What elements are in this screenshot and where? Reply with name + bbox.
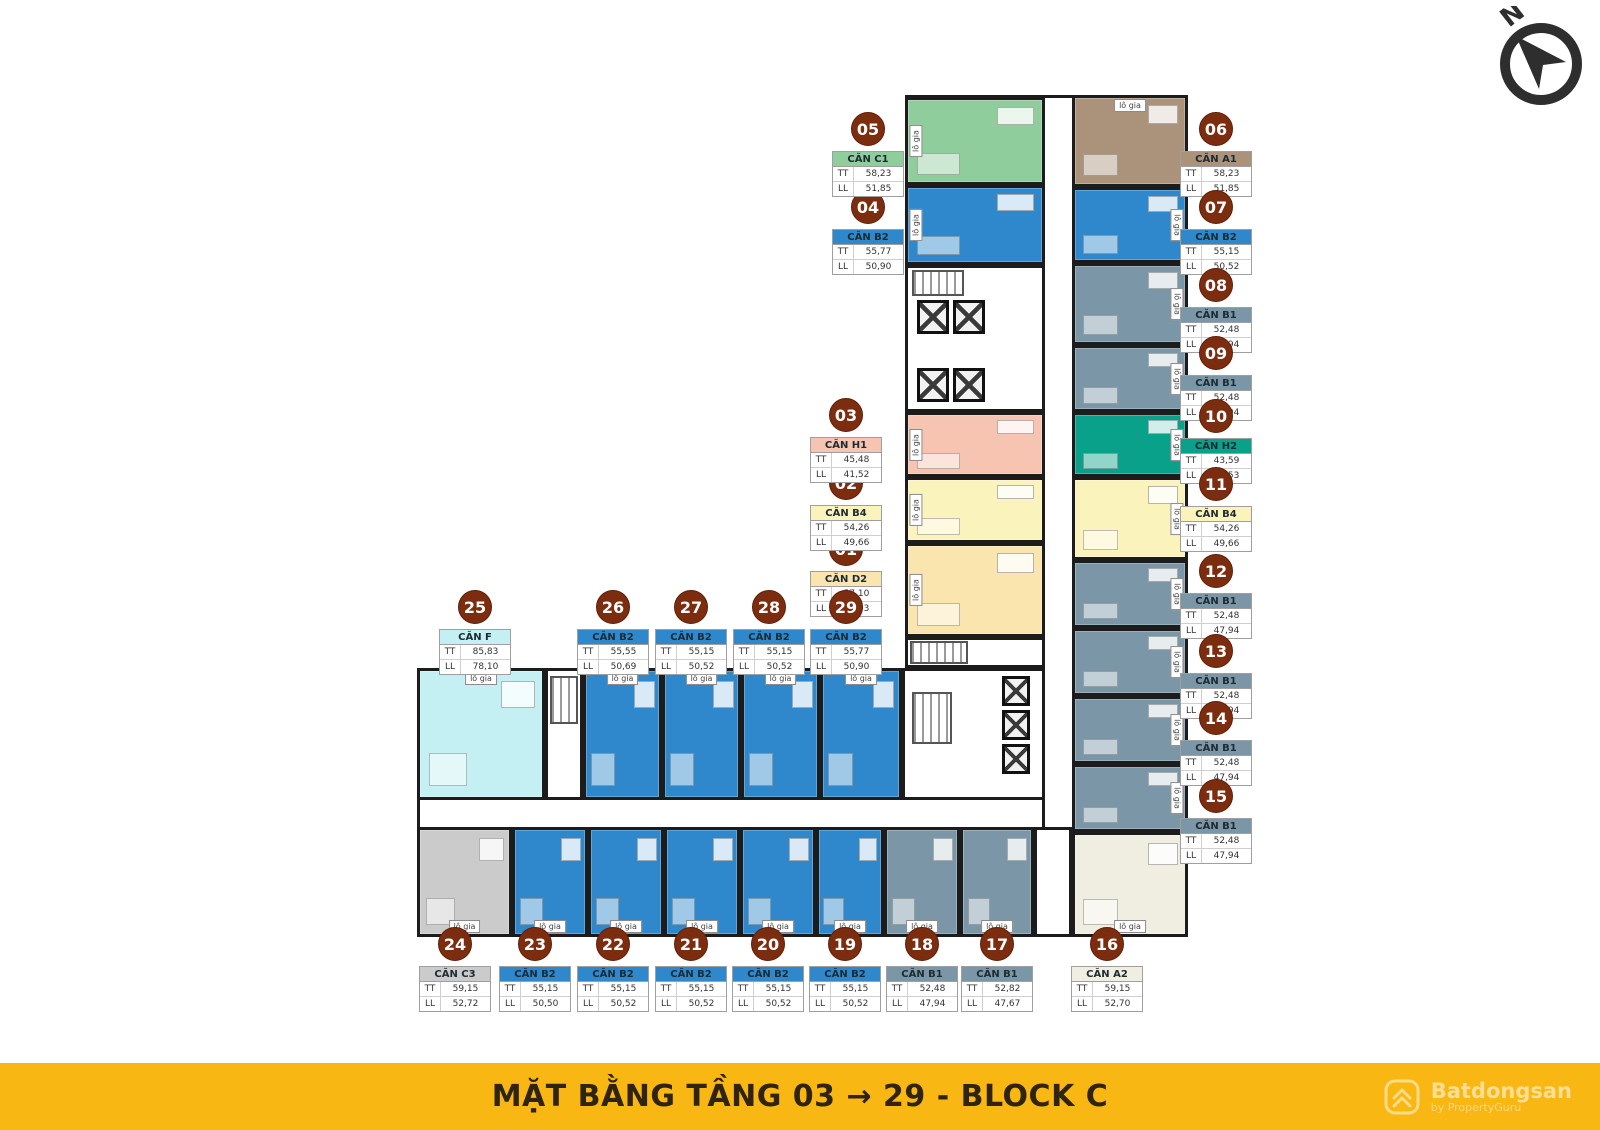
unit-number-badge: 18 bbox=[905, 927, 939, 961]
area-value-ll: 52,72 bbox=[441, 997, 490, 1011]
plan-unit-18: lô gia bbox=[884, 827, 960, 937]
unit-type-label: CĂN B1 bbox=[1181, 674, 1251, 689]
plan-unit-19: lô gia bbox=[816, 827, 884, 937]
area-label-tt: TT bbox=[1181, 522, 1202, 536]
unit-area-row: LL47,67 bbox=[962, 997, 1032, 1011]
unit-area-row: TT59,15 bbox=[420, 982, 490, 997]
unit-info-table: CĂN B2TT55,15LL50,52 bbox=[733, 629, 805, 675]
unit-number-badge: 10 bbox=[1199, 399, 1233, 433]
area-value-ll: 50,52 bbox=[754, 997, 803, 1011]
area-label-ll: LL bbox=[440, 660, 461, 674]
area-label-ll: LL bbox=[420, 997, 441, 1011]
unit-number-badge: 19 bbox=[828, 927, 862, 961]
unit-type-label: CĂN B2 bbox=[578, 967, 648, 982]
unit-area-row: TT54,26 bbox=[811, 521, 881, 536]
unit-area-row: TT55,77 bbox=[811, 645, 881, 660]
logia-label: lô gia bbox=[909, 574, 922, 606]
plan-unit-21: lô gia bbox=[664, 827, 740, 937]
unit-info-table: CĂN B2TT55,15LL50,50 bbox=[499, 966, 571, 1012]
area-value-ll: 50,90 bbox=[854, 260, 903, 274]
unit-area-row: LL50,90 bbox=[833, 260, 903, 274]
area-label-ll: LL bbox=[734, 660, 755, 674]
unit-type-label: CĂN B2 bbox=[833, 230, 903, 245]
unit-card-27: 27CĂN B2TT55,15LL50,52 bbox=[655, 590, 727, 675]
unit-area-row: LL52,70 bbox=[1072, 997, 1142, 1011]
area-label-tt: TT bbox=[1181, 323, 1202, 337]
unit-type-label: CĂN B2 bbox=[734, 630, 804, 645]
unit-type-label: CĂN B1 bbox=[962, 967, 1032, 982]
unit-type-label: CĂN A2 bbox=[1072, 967, 1142, 982]
plan-unit-13: lô gia bbox=[1072, 628, 1188, 696]
unit-number-badge: 14 bbox=[1199, 701, 1233, 735]
unit-area-row: LL50,69 bbox=[578, 660, 648, 674]
area-label-ll: LL bbox=[578, 997, 599, 1011]
plan-unit-27: lô gia bbox=[662, 668, 741, 800]
logia-label: lô gia bbox=[909, 494, 922, 526]
area-value-tt: 59,15 bbox=[1093, 982, 1142, 996]
plan-unit-15: lô gia bbox=[1072, 764, 1188, 832]
area-label-ll: LL bbox=[811, 536, 832, 550]
unit-type-label: CĂN B2 bbox=[810, 967, 880, 982]
unit-area-row: LL50,52 bbox=[734, 660, 804, 674]
unit-type-label: CĂN B2 bbox=[578, 630, 648, 645]
unit-area-row: TT55,15 bbox=[810, 982, 880, 997]
unit-type-label: CĂN B4 bbox=[811, 506, 881, 521]
unit-area-row: TT55,15 bbox=[656, 645, 726, 660]
logia-label: lô gia bbox=[909, 125, 922, 157]
unit-number-badge: 05 bbox=[851, 112, 885, 146]
unit-area-row: LL50,50 bbox=[500, 997, 570, 1011]
elevator-shaft-3 bbox=[953, 368, 985, 402]
unit-info-table: CĂN A2TT59,15LL52,70 bbox=[1071, 966, 1143, 1012]
unit-info-table: CĂN B2TT55,15LL50,52 bbox=[732, 966, 804, 1012]
area-value-tt: 55,15 bbox=[521, 982, 570, 996]
area-value-tt: 55,15 bbox=[677, 645, 726, 659]
area-value-ll: 50,52 bbox=[677, 997, 726, 1011]
unit-area-row: LL49,66 bbox=[1181, 537, 1251, 551]
area-label-ll: LL bbox=[811, 660, 832, 674]
area-label-ll: LL bbox=[656, 997, 677, 1011]
area-label-ll: LL bbox=[833, 260, 854, 274]
area-value-tt: 52,48 bbox=[1202, 609, 1251, 623]
unit-type-label: CĂN B2 bbox=[811, 630, 881, 645]
unit-type-label: CĂN B2 bbox=[733, 967, 803, 982]
area-label-ll: LL bbox=[811, 468, 832, 482]
area-label-ll: LL bbox=[656, 660, 677, 674]
area-label-ll: LL bbox=[833, 182, 854, 196]
unit-type-label: CĂN B1 bbox=[887, 967, 957, 982]
area-label-tt: TT bbox=[656, 982, 677, 996]
unit-area-row: TT52,48 bbox=[887, 982, 957, 997]
unit-area-row: TT58,23 bbox=[833, 167, 903, 182]
unit-number-badge: 03 bbox=[829, 398, 863, 432]
area-value-tt: 85,83 bbox=[461, 645, 510, 659]
elevator-shaft-5 bbox=[1002, 710, 1030, 740]
area-value-ll: 50,52 bbox=[831, 997, 880, 1011]
area-label-ll: LL bbox=[810, 997, 831, 1011]
area-label-ll: LL bbox=[1181, 849, 1202, 863]
area-value-tt: 58,23 bbox=[1202, 167, 1251, 181]
unit-info-table: CĂN B1TT52,48LL47,94 bbox=[886, 966, 958, 1012]
unit-card-17: 17CĂN B1TT52,82LL47,67 bbox=[961, 927, 1033, 1012]
unit-area-row: TT55,15 bbox=[656, 982, 726, 997]
unit-number-badge: 06 bbox=[1199, 112, 1233, 146]
unit-area-row: LL49,66 bbox=[811, 536, 881, 550]
unit-area-row: TT55,15 bbox=[734, 645, 804, 660]
area-value-ll: 49,66 bbox=[832, 536, 881, 550]
plan-unit-29: lô gia bbox=[820, 668, 902, 800]
area-value-tt: 55,15 bbox=[1202, 245, 1251, 259]
area-value-tt: 52,48 bbox=[908, 982, 957, 996]
unit-type-label: CĂN B2 bbox=[656, 967, 726, 982]
area-label-tt: TT bbox=[734, 645, 755, 659]
area-label-tt: TT bbox=[811, 453, 832, 467]
unit-area-row: TT55,15 bbox=[733, 982, 803, 997]
unit-type-label: CĂN B1 bbox=[1181, 376, 1251, 391]
plan-unit-05: lô gia bbox=[905, 97, 1045, 185]
area-label-tt: TT bbox=[1181, 609, 1202, 623]
unit-card-07: 07CĂN B2TT55,15LL50,52 bbox=[1180, 190, 1252, 275]
plan-unit-12: lô gia bbox=[1072, 560, 1188, 628]
area-label-tt: TT bbox=[833, 245, 854, 259]
unit-area-row: LL52,72 bbox=[420, 997, 490, 1011]
area-label-tt: TT bbox=[578, 645, 599, 659]
area-label-tt: TT bbox=[810, 982, 831, 996]
area-label-tt: TT bbox=[733, 982, 754, 996]
plan-unit-01: lô gia bbox=[905, 543, 1045, 637]
unit-type-label: CĂN C1 bbox=[833, 152, 903, 167]
plan-unit-28: lô gia bbox=[741, 668, 820, 800]
elevator-shaft-0 bbox=[917, 300, 949, 334]
brand-watermark: Batdongsan by PropertyGuru bbox=[1383, 1078, 1572, 1116]
unit-card-18: 18CĂN B1TT52,48LL47,94 bbox=[886, 927, 958, 1012]
area-value-ll: 50,52 bbox=[677, 660, 726, 674]
area-value-ll: 41,52 bbox=[832, 468, 881, 482]
unit-number-badge: 28 bbox=[752, 590, 786, 624]
area-value-ll: 47,67 bbox=[983, 997, 1032, 1011]
area-value-ll: 50,69 bbox=[599, 660, 648, 674]
plan-unit-26: lô gia bbox=[583, 668, 662, 800]
area-value-tt: 52,48 bbox=[1202, 834, 1251, 848]
area-value-ll: 47,94 bbox=[908, 997, 957, 1011]
area-value-tt: 55,77 bbox=[854, 245, 903, 259]
unit-card-25: 25CĂN FTT85,83LL78,10 bbox=[439, 590, 511, 675]
unit-area-row: LL50,90 bbox=[811, 660, 881, 674]
unit-area-row: TT55,15 bbox=[578, 982, 648, 997]
area-label-ll: LL bbox=[733, 997, 754, 1011]
area-label-tt: TT bbox=[578, 982, 599, 996]
unit-area-row: LL47,94 bbox=[887, 997, 957, 1011]
unit-type-label: CĂN B1 bbox=[1181, 594, 1251, 609]
unit-type-label: CĂN A1 bbox=[1181, 152, 1251, 167]
unit-type-label: CĂN B1 bbox=[1181, 308, 1251, 323]
area-value-ll: 50,90 bbox=[832, 660, 881, 674]
area-value-tt: 52,48 bbox=[1202, 323, 1251, 337]
area-value-ll: 50,52 bbox=[599, 997, 648, 1011]
unit-area-row: LL47,94 bbox=[1181, 849, 1251, 863]
unit-number-badge: 09 bbox=[1199, 336, 1233, 370]
unit-area-row: LL41,52 bbox=[811, 468, 881, 482]
unit-card-28: 28CĂN B2TT55,15LL50,52 bbox=[733, 590, 805, 675]
area-label-ll: LL bbox=[578, 660, 599, 674]
area-label-ll: LL bbox=[962, 997, 983, 1011]
unit-info-table: CĂN B2TT55,15LL50,52 bbox=[655, 629, 727, 675]
area-value-tt: 55,55 bbox=[599, 645, 648, 659]
unit-number-badge: 07 bbox=[1199, 190, 1233, 224]
plan-unit-17: lô gia bbox=[960, 827, 1034, 937]
unit-area-row: LL51,85 bbox=[833, 182, 903, 196]
unit-card-20: 20CĂN B2TT55,15LL50,52 bbox=[732, 927, 804, 1012]
unit-type-label: CĂN B2 bbox=[1181, 230, 1251, 245]
area-label-tt: TT bbox=[1072, 982, 1093, 996]
area-value-ll: 78,10 bbox=[461, 660, 510, 674]
unit-number-badge: 17 bbox=[980, 927, 1014, 961]
unit-area-row: LL50,52 bbox=[656, 997, 726, 1011]
unit-card-29: 29CĂN B2TT55,77LL50,90 bbox=[810, 590, 882, 675]
unit-card-06: 06CĂN A1TT58,23LL51,85 bbox=[1180, 112, 1252, 197]
unit-area-row: TT58,23 bbox=[1181, 167, 1251, 182]
unit-area-row: LL50,52 bbox=[578, 997, 648, 1011]
compass-north-icon: N bbox=[1486, 6, 1596, 110]
plan-unit-24: lô gia bbox=[417, 827, 512, 937]
unit-number-badge: 29 bbox=[829, 590, 863, 624]
unit-card-14: 14CĂN B1TT52,48LL47,94 bbox=[1180, 701, 1252, 786]
area-value-tt: 59,15 bbox=[441, 982, 490, 996]
unit-area-row: LL50,52 bbox=[656, 660, 726, 674]
stairs-2 bbox=[912, 692, 952, 744]
unit-info-table: CĂN B4TT54,26LL49,66 bbox=[810, 505, 882, 551]
core-area-4 bbox=[1034, 827, 1072, 937]
area-value-tt: 55,15 bbox=[677, 982, 726, 996]
unit-info-table: CĂN B2TT55,15LL50,52 bbox=[809, 966, 881, 1012]
unit-number-badge: 22 bbox=[596, 927, 630, 961]
unit-number-badge: 11 bbox=[1199, 467, 1233, 501]
unit-info-table: CĂN B4TT54,26LL49,66 bbox=[1180, 506, 1252, 552]
area-label-tt: TT bbox=[1181, 834, 1202, 848]
title-banner: MẶT BẰNG TẦNG 03 → 29 - BLOCK C Batdongs… bbox=[0, 1063, 1600, 1130]
unit-info-table: CĂN B1TT52,82LL47,67 bbox=[961, 966, 1033, 1012]
unit-number-badge: 15 bbox=[1199, 779, 1233, 813]
unit-type-label: CĂN H2 bbox=[1181, 439, 1251, 454]
unit-area-row: TT54,26 bbox=[1181, 522, 1251, 537]
area-value-tt: 54,26 bbox=[832, 521, 881, 535]
plan-unit-03: lô gia bbox=[905, 412, 1045, 477]
unit-card-22: 22CĂN B2TT55,15LL50,52 bbox=[577, 927, 649, 1012]
unit-area-row: TT45,48 bbox=[811, 453, 881, 468]
plan-unit-16: lô gia bbox=[1072, 832, 1188, 937]
unit-number-badge: 25 bbox=[458, 590, 492, 624]
area-label-ll: LL bbox=[887, 997, 908, 1011]
unit-info-table: CĂN B2TT55,15LL50,52 bbox=[577, 966, 649, 1012]
area-label-tt: TT bbox=[833, 167, 854, 181]
unit-area-row: TT52,48 bbox=[1181, 756, 1251, 771]
plan-unit-04: lô gia bbox=[905, 185, 1045, 265]
unit-info-table: CĂN C3TT59,15LL52,72 bbox=[419, 966, 491, 1012]
unit-area-row: TT55,15 bbox=[1181, 245, 1251, 260]
unit-info-table: CĂN B2TT55,15LL50,52 bbox=[655, 966, 727, 1012]
area-label-tt: TT bbox=[440, 645, 461, 659]
unit-area-row: TT52,48 bbox=[1181, 834, 1251, 849]
area-value-tt: 45,48 bbox=[832, 453, 881, 467]
unit-area-row: LL78,10 bbox=[440, 660, 510, 674]
unit-area-row: TT59,15 bbox=[1072, 982, 1142, 997]
unit-info-table: CĂN B1TT52,48LL47,94 bbox=[1180, 818, 1252, 864]
unit-area-row: TT55,15 bbox=[500, 982, 570, 997]
unit-card-03: 03CĂN H1TT45,48LL41,52 bbox=[810, 398, 882, 483]
plan-unit-02: lô gia bbox=[905, 477, 1045, 543]
unit-info-table: CĂN B2TT55,55LL50,69 bbox=[577, 629, 649, 675]
brand-name: Batdongsan bbox=[1431, 1080, 1572, 1102]
area-label-tt: TT bbox=[811, 645, 832, 659]
unit-type-label: CĂN B2 bbox=[656, 630, 726, 645]
unit-card-05: 05CĂN C1TT58,23LL51,85 bbox=[832, 112, 904, 197]
plan-unit-08: lô gia bbox=[1072, 263, 1188, 345]
unit-area-row: LL50,52 bbox=[733, 997, 803, 1011]
area-label-tt: TT bbox=[500, 982, 521, 996]
area-value-tt: 55,15 bbox=[599, 982, 648, 996]
plan-unit-14: lô gia bbox=[1072, 696, 1188, 764]
area-value-tt: 54,26 bbox=[1202, 522, 1251, 536]
unit-number-badge: 08 bbox=[1199, 268, 1233, 302]
area-value-ll: 50,52 bbox=[755, 660, 804, 674]
unit-number-badge: 26 bbox=[596, 590, 630, 624]
area-value-ll: 51,85 bbox=[854, 182, 903, 196]
unit-card-26: 26CĂN B2TT55,55LL50,69 bbox=[577, 590, 649, 675]
unit-type-label: CĂN B4 bbox=[1181, 507, 1251, 522]
area-value-tt: 55,77 bbox=[832, 645, 881, 659]
plan-unit-20: lô gia bbox=[740, 827, 816, 937]
plan-unit-22: lô gia bbox=[588, 827, 664, 937]
area-label-tt: TT bbox=[811, 521, 832, 535]
unit-card-24: 24CĂN C3TT59,15LL52,72 bbox=[419, 927, 491, 1012]
unit-number-badge: 12 bbox=[1199, 554, 1233, 588]
area-value-ll: 50,50 bbox=[521, 997, 570, 1011]
area-label-ll: LL bbox=[1072, 997, 1093, 1011]
plan-unit-10: lô gia bbox=[1072, 412, 1188, 477]
unit-card-15: 15CĂN B1TT52,48LL47,94 bbox=[1180, 779, 1252, 864]
unit-area-row: TT52,48 bbox=[1181, 609, 1251, 624]
area-label-tt: TT bbox=[1181, 454, 1202, 468]
unit-type-label: CĂN F bbox=[440, 630, 510, 645]
unit-type-label: CĂN B1 bbox=[1181, 741, 1251, 756]
unit-info-table: CĂN C1TT58,23LL51,85 bbox=[832, 151, 904, 197]
unit-number-badge: 24 bbox=[438, 927, 472, 961]
brand-byline: by PropertyGuru bbox=[1431, 1102, 1572, 1114]
unit-area-row: TT52,82 bbox=[962, 982, 1032, 997]
unit-info-table: CĂN B2TT55,77LL50,90 bbox=[810, 629, 882, 675]
unit-area-row: TT55,55 bbox=[578, 645, 648, 660]
area-value-tt: 52,82 bbox=[983, 982, 1032, 996]
unit-card-23: 23CĂN B2TT55,15LL50,50 bbox=[499, 927, 571, 1012]
unit-number-badge: 16 bbox=[1090, 927, 1124, 961]
plan-unit-09: lô gia bbox=[1072, 345, 1188, 412]
stairs-1 bbox=[550, 676, 578, 724]
area-value-ll: 47,94 bbox=[1202, 849, 1251, 863]
logia-label: lô gia bbox=[1114, 99, 1146, 112]
area-value-tt: 52,48 bbox=[1202, 756, 1251, 770]
logia-label: lô gia bbox=[909, 209, 922, 241]
unit-card-04: 04CĂN B2TT55,77LL50,90 bbox=[832, 190, 904, 275]
unit-info-table: CĂN B2TT55,77LL50,90 bbox=[832, 229, 904, 275]
unit-type-label: CĂN B1 bbox=[1181, 819, 1251, 834]
logia-label: lô gia bbox=[909, 429, 922, 461]
plan-unit-23: lô gia bbox=[512, 827, 588, 937]
area-label-tt: TT bbox=[656, 645, 677, 659]
unit-info-table: CĂN B1TT52,48LL47,94 bbox=[1180, 593, 1252, 639]
elevator-shaft-6 bbox=[1002, 744, 1030, 774]
unit-type-label: CĂN C3 bbox=[420, 967, 490, 982]
unit-card-16: 16CĂN A2TT59,15LL52,70 bbox=[1071, 927, 1143, 1012]
page-title: MẶT BẰNG TẦNG 03 → 29 - BLOCK C bbox=[492, 1079, 1109, 1114]
area-value-tt: 43,59 bbox=[1202, 454, 1251, 468]
unit-card-21: 21CĂN B2TT55,15LL50,52 bbox=[655, 927, 727, 1012]
plan-unit-25: lô gia bbox=[417, 668, 545, 800]
unit-area-row: TT85,83 bbox=[440, 645, 510, 660]
unit-number-badge: 20 bbox=[751, 927, 785, 961]
unit-type-label: CĂN H1 bbox=[811, 438, 881, 453]
area-label-tt: TT bbox=[1181, 245, 1202, 259]
area-value-tt: 55,15 bbox=[754, 982, 803, 996]
unit-card-19: 19CĂN B2TT55,15LL50,52 bbox=[809, 927, 881, 1012]
unit-area-row: LL50,52 bbox=[810, 997, 880, 1011]
area-value-ll: 52,70 bbox=[1093, 997, 1142, 1011]
plan-unit-11: lô gia bbox=[1072, 477, 1188, 560]
unit-info-table: CĂN FTT85,83LL78,10 bbox=[439, 629, 511, 675]
area-value-ll: 49,66 bbox=[1202, 537, 1251, 551]
unit-type-label: CĂN B2 bbox=[500, 967, 570, 982]
area-label-tt: TT bbox=[887, 982, 908, 996]
stairs-0 bbox=[912, 270, 964, 296]
plan-unit-07: lô gia bbox=[1072, 187, 1188, 263]
unit-info-table: CĂN H1TT45,48LL41,52 bbox=[810, 437, 882, 483]
elevator-shaft-2 bbox=[917, 368, 949, 402]
elevator-shaft-4 bbox=[1002, 676, 1030, 706]
unit-number-badge: 23 bbox=[518, 927, 552, 961]
area-label-tt: TT bbox=[1181, 167, 1202, 181]
area-value-tt: 55,15 bbox=[755, 645, 804, 659]
unit-card-11: 11CĂN B4TT54,26LL49,66 bbox=[1180, 467, 1252, 552]
elevator-shaft-1 bbox=[953, 300, 985, 334]
area-label-ll: LL bbox=[500, 997, 521, 1011]
area-label-tt: TT bbox=[962, 982, 983, 996]
house-chevrons-icon bbox=[1383, 1078, 1421, 1116]
unit-number-badge: 27 bbox=[674, 590, 708, 624]
unit-number-badge: 13 bbox=[1199, 634, 1233, 668]
area-value-tt: 58,23 bbox=[854, 167, 903, 181]
plan-unit-06: lô gia bbox=[1072, 95, 1188, 187]
area-label-ll: LL bbox=[1181, 537, 1202, 551]
unit-number-badge: 21 bbox=[674, 927, 708, 961]
stairs-3 bbox=[910, 641, 968, 664]
area-label-tt: TT bbox=[420, 982, 441, 996]
unit-card-12: 12CĂN B1TT52,48LL47,94 bbox=[1180, 554, 1252, 639]
floorplan-poster: N lô gialô gialô gialô gialô gialô gialô… bbox=[0, 0, 1600, 1130]
unit-type-label: CĂN D2 bbox=[811, 572, 881, 587]
area-label-tt: TT bbox=[1181, 756, 1202, 770]
unit-area-row: TT55,77 bbox=[833, 245, 903, 260]
area-value-tt: 55,15 bbox=[831, 982, 880, 996]
